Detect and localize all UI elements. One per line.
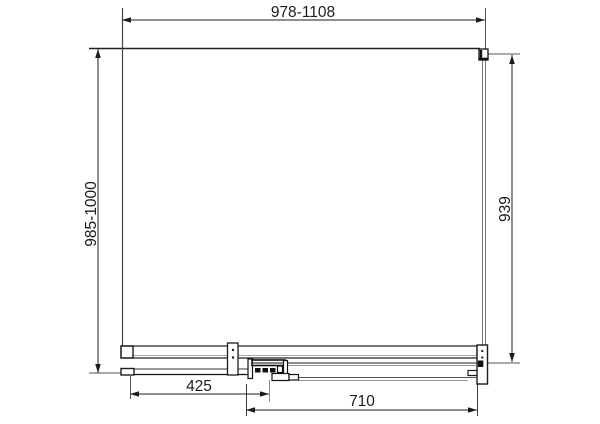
bottom-rail-assembly: [121, 343, 488, 384]
center-support-bracket: [228, 343, 239, 375]
post-screw-top: [481, 350, 483, 352]
drawing-canvas: 978-1108 985-1000 939 425 710: [0, 0, 600, 424]
bottom-rail: [121, 346, 477, 358]
roller-2: [263, 368, 269, 373]
right-stub-bracket: [468, 371, 477, 376]
roller-block: [278, 366, 283, 373]
arrow-width-right: [476, 17, 485, 23]
arrow-width-left: [122, 17, 131, 23]
arrow-425-right: [260, 391, 269, 397]
label-left-segment: 425: [186, 378, 212, 395]
arrow-height-top: [95, 49, 101, 58]
roller-1: [255, 368, 261, 373]
bracket-screw-bottom: [232, 356, 234, 358]
bracket-screw-top: [232, 349, 234, 351]
enclosure-outline: [89, 8, 488, 346]
label-overall-height: 985-1000: [83, 181, 100, 247]
lower-left-bracket: [121, 369, 134, 376]
bottom-guide: [272, 374, 289, 381]
arrow-425-left: [130, 391, 139, 397]
label-overall-width: 978-1108: [271, 4, 335, 21]
arrow-710-right: [468, 407, 477, 413]
arrow-glass-top: [509, 55, 515, 64]
label-glass-height: 939: [497, 196, 514, 222]
arrow-glass-bottom: [509, 353, 515, 362]
door-roller-assembly: [248, 359, 299, 381]
technical-drawing: 978-1108 985-1000 939 425 710: [0, 0, 600, 424]
post-screw-bottom: [481, 356, 483, 358]
arrow-710-left: [246, 407, 255, 413]
bottom-guide-cap: [289, 375, 299, 381]
arrow-height-bottom: [95, 364, 101, 373]
roller-3: [270, 368, 276, 373]
label-door-width: 710: [349, 393, 375, 410]
post-latch-block: [478, 361, 484, 368]
